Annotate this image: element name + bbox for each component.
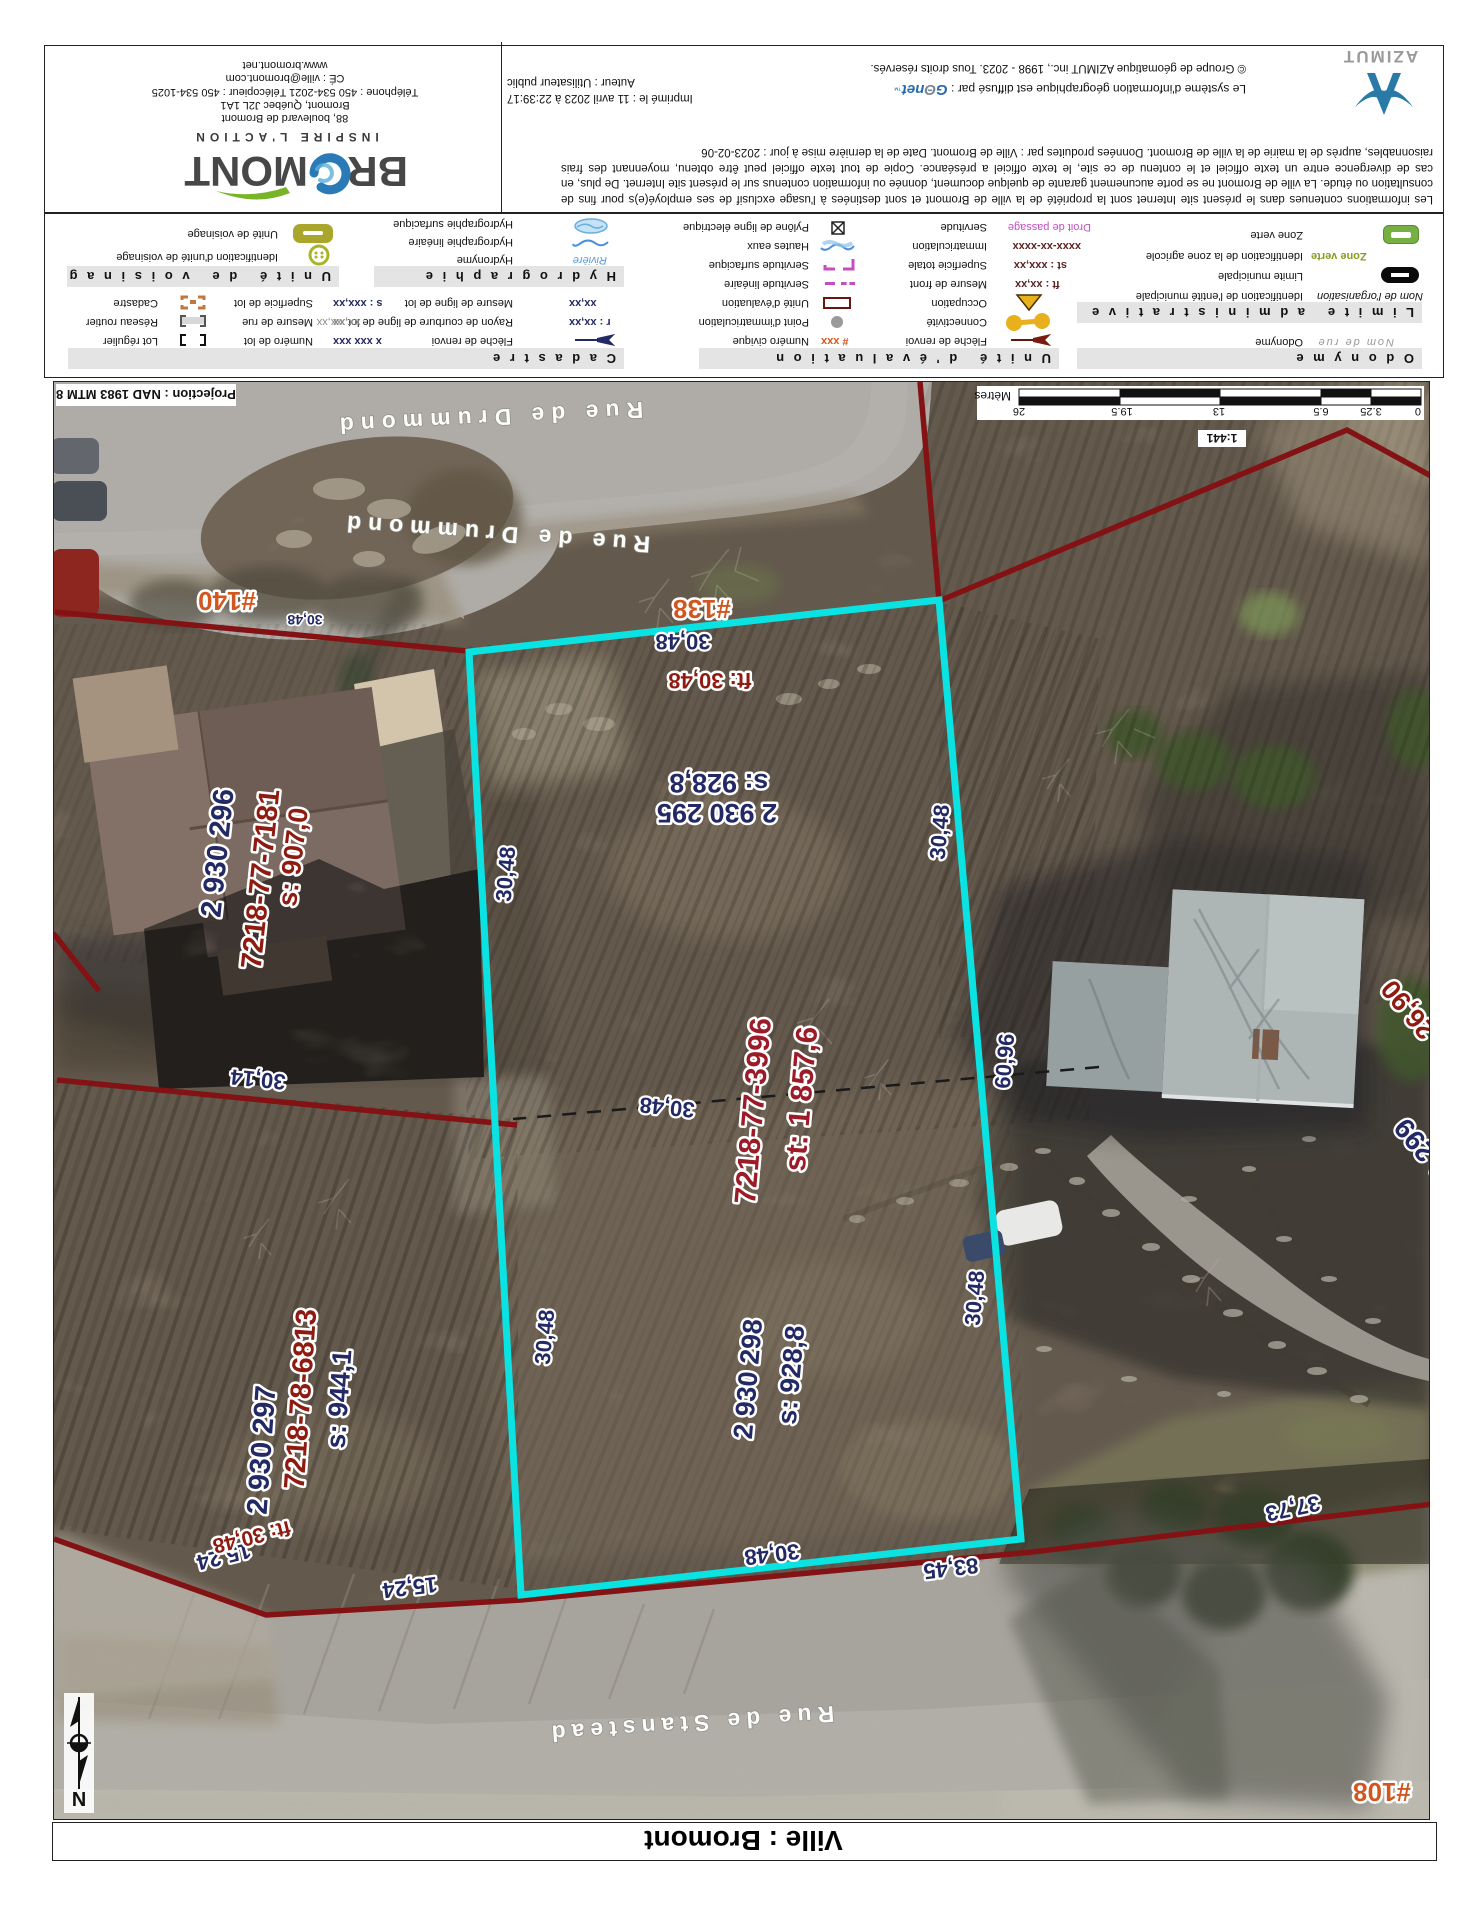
svg-text:Mètres: Mètres xyxy=(974,389,1011,403)
svg-text:19.5: 19.5 xyxy=(1111,405,1132,417)
svg-text:N: N xyxy=(72,1787,86,1809)
svg-text:#108: #108 xyxy=(1353,1777,1411,1807)
svg-text:26: 26 xyxy=(1013,405,1025,417)
svg-text:6.5: 6.5 xyxy=(1313,405,1328,417)
svg-text:MONT: MONT xyxy=(184,148,308,195)
svg-text:2 930 295: 2 930 295 xyxy=(657,798,777,828)
svg-text:30,48: 30,48 xyxy=(530,1309,560,1366)
svg-text:30,48: 30,48 xyxy=(287,612,322,628)
svg-text:30,48: 30,48 xyxy=(491,846,521,903)
svg-text:0: 0 xyxy=(1415,405,1421,417)
svg-text:ft: 30,48: ft: 30,48 xyxy=(668,668,751,693)
svg-text:3.25: 3.25 xyxy=(1360,405,1381,417)
svg-text:s: 928,8: s: 928,8 xyxy=(669,768,768,798)
svg-text:BR: BR xyxy=(347,148,408,195)
svg-text:13: 13 xyxy=(1213,405,1225,417)
svg-text:30,48: 30,48 xyxy=(960,1270,990,1327)
svg-text:#138: #138 xyxy=(673,594,731,624)
svg-text:#140: #140 xyxy=(198,586,256,616)
svg-text:1:441: 1:441 xyxy=(1206,431,1237,445)
svg-text:30,48: 30,48 xyxy=(655,629,710,654)
svg-text:Projection : NAD 1983 MTM 8: Projection : NAD 1983 MTM 8 xyxy=(56,387,236,402)
svg-text:60,96: 60,96 xyxy=(990,1033,1020,1090)
svg-text:30,48: 30,48 xyxy=(925,804,955,861)
